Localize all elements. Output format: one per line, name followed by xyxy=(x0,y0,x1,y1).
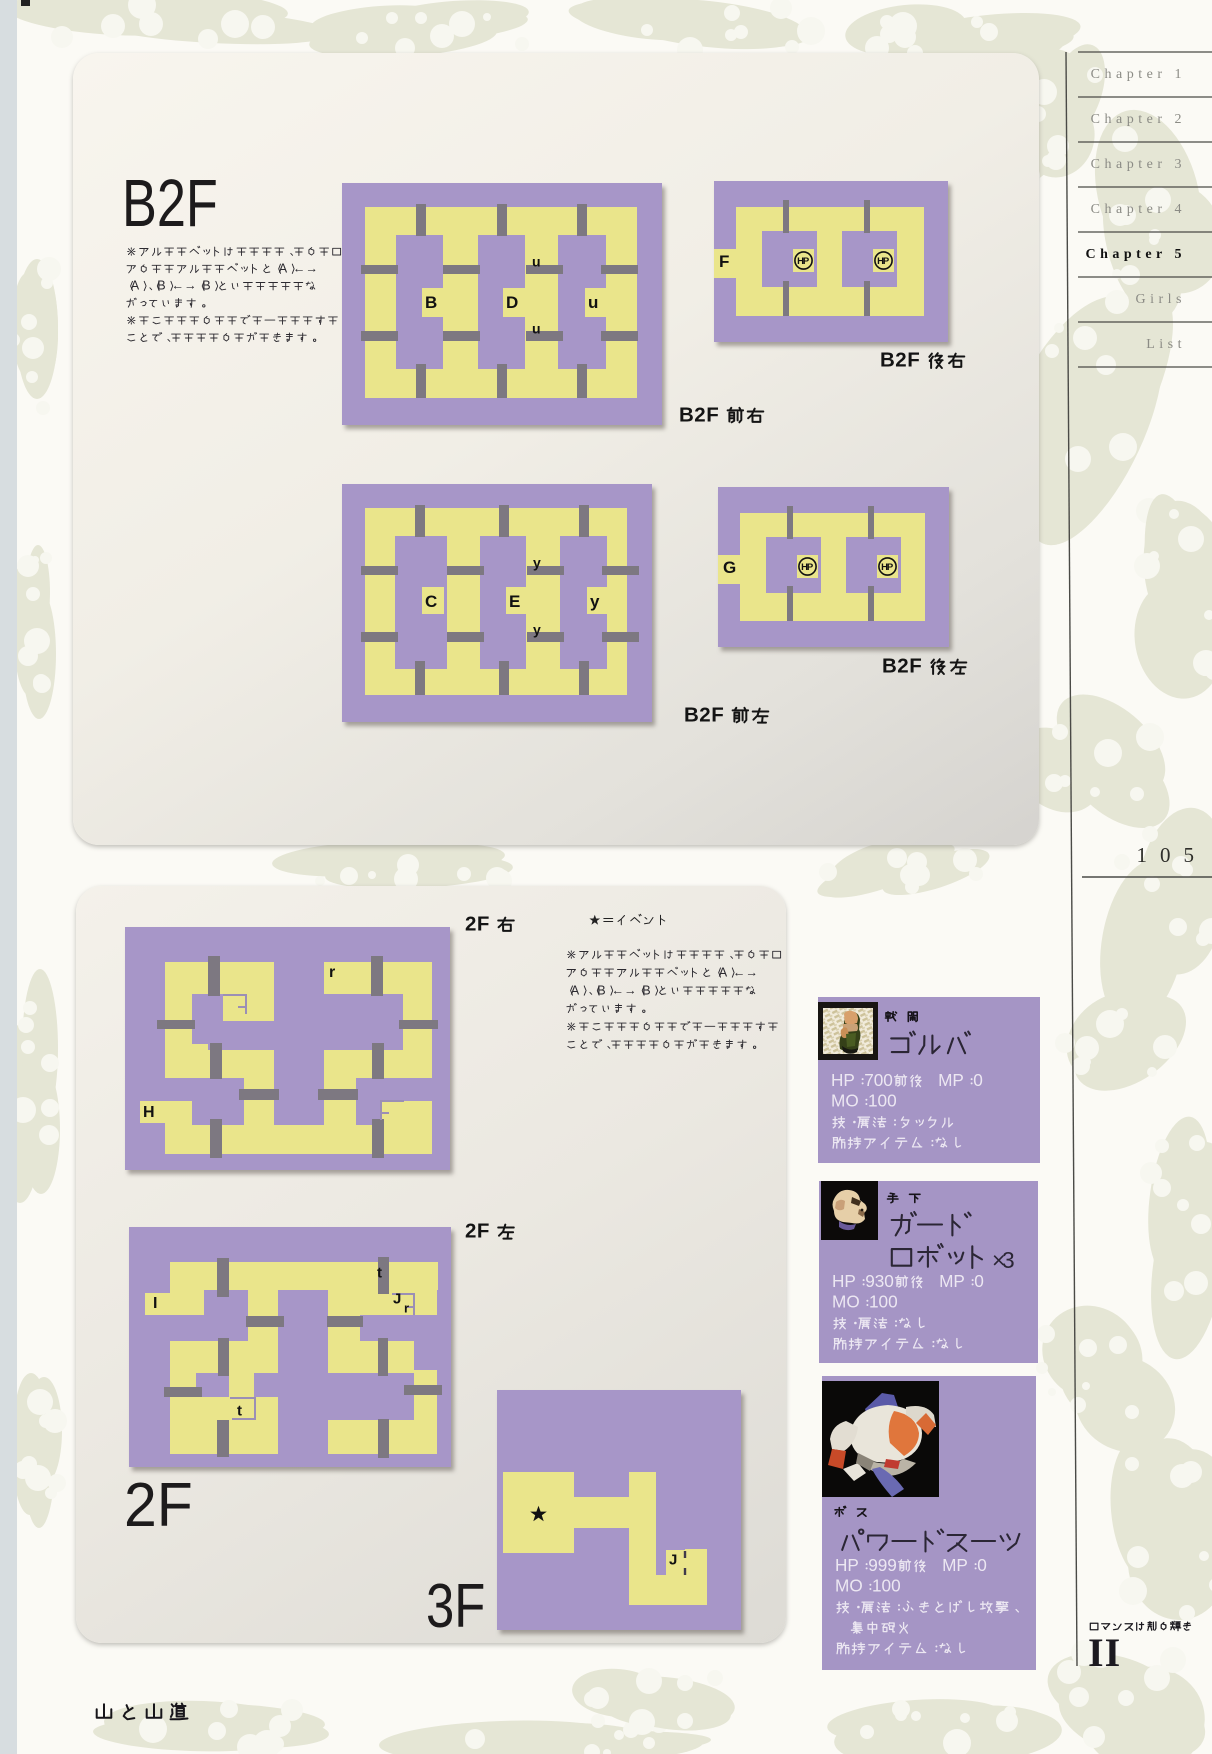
svg-text:HP: HP xyxy=(831,1070,855,1090)
svg-text:0: 0 xyxy=(974,1271,984,1291)
svg-text:0: 0 xyxy=(973,1070,983,1090)
svg-text:100: 100 xyxy=(869,1291,898,1311)
svg-text:100: 100 xyxy=(868,1090,897,1110)
svg-text:MP: MP xyxy=(938,1070,964,1090)
svg-text:HP: HP xyxy=(832,1271,856,1291)
svg-text:MP: MP xyxy=(942,1555,968,1575)
svg-text:MP: MP xyxy=(939,1271,965,1291)
svg-text:100: 100 xyxy=(872,1575,901,1595)
svg-text:HP: HP xyxy=(835,1555,859,1575)
svg-text:700: 700 xyxy=(864,1070,893,1090)
svg-text:MO: MO xyxy=(831,1090,859,1110)
svg-text:×3: ×3 xyxy=(992,1247,1014,1273)
svg-text:0: 0 xyxy=(977,1555,987,1575)
svg-text:930: 930 xyxy=(865,1271,894,1291)
svg-text:MO: MO xyxy=(835,1575,863,1595)
svg-text:999: 999 xyxy=(868,1555,897,1575)
svg-text:MO: MO xyxy=(832,1291,860,1311)
